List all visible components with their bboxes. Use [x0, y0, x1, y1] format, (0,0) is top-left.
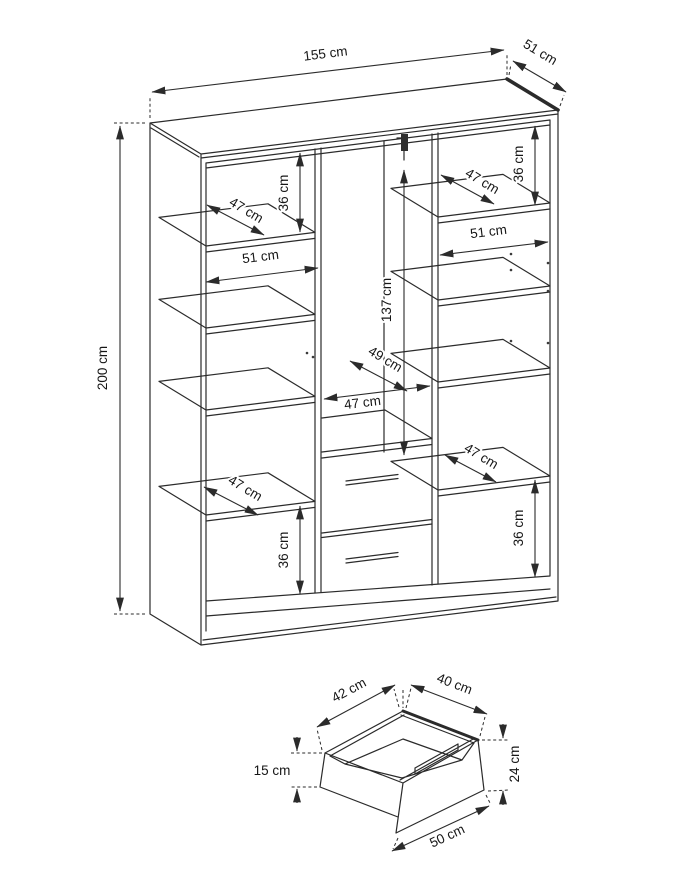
dim-label-right-gap-top: 36 cm	[511, 146, 526, 183]
dim-label-drawer-inner-depth: 42 cm	[329, 675, 369, 706]
drawer-dimension-lines	[297, 685, 503, 851]
dim-label-mid-height: 137 cm	[379, 278, 394, 322]
dim-label-left-width: 51 cm	[241, 247, 279, 266]
dim-label-mid-width: 47 cm	[343, 393, 381, 412]
dim-label-left-shelf-depth-top: 47 cm	[227, 194, 266, 226]
dim-label-left-shelf-depth-bottom: 47 cm	[226, 472, 265, 504]
drawer-outline	[320, 711, 484, 833]
wardrobe-partitions	[315, 133, 438, 593]
wardrobe-carcass-outline	[150, 79, 558, 645]
dim-label-right-shelf-depth-top: 47 cm	[463, 165, 502, 197]
dim-label-left-gap-bottom: 36 cm	[276, 532, 291, 569]
dim-label-drawer-front-height: 24 cm	[507, 746, 522, 783]
dim-label-mid-depth: 49 cm	[366, 343, 405, 375]
dim-label-left-gap-top: 36 cm	[276, 175, 291, 212]
hanging-rail-icon	[397, 134, 408, 160]
technical-diagram: 155 cm 51 cm 200 cm 36 cm 47 cm 51 cm 47…	[0, 0, 700, 869]
wardrobe-dimension-lines	[120, 50, 566, 611]
dim-label-right-width: 51 cm	[469, 222, 507, 241]
wardrobe-top-right-edge	[507, 79, 558, 110]
wardrobe-extension-lines	[112, 55, 564, 614]
dim-label-overall-height: 200 cm	[95, 346, 110, 390]
dim-label-right-gap-bottom: 36 cm	[511, 510, 526, 547]
wardrobe-drawing: 155 cm 51 cm 200 cm 36 cm 47 cm 51 cm 47…	[95, 36, 566, 645]
mid-drawer-unit	[322, 410, 432, 563]
dim-label-overall-width: 155 cm	[303, 43, 349, 63]
shelf-pin-holes	[306, 253, 550, 359]
dim-label-drawer-inner-width: 40 cm	[435, 670, 475, 697]
dim-label-overall-depth: 51 cm	[521, 36, 560, 68]
drawer-back-top-edge	[403, 711, 478, 740]
dim-label-drawer-side-height: 15 cm	[254, 763, 291, 778]
diagram-canvas: 155 cm 51 cm 200 cm 36 cm 47 cm 51 cm 47…	[0, 0, 700, 869]
drawer-drawing: 42 cm 40 cm 15 cm 24 cm 50 cm	[254, 670, 522, 851]
